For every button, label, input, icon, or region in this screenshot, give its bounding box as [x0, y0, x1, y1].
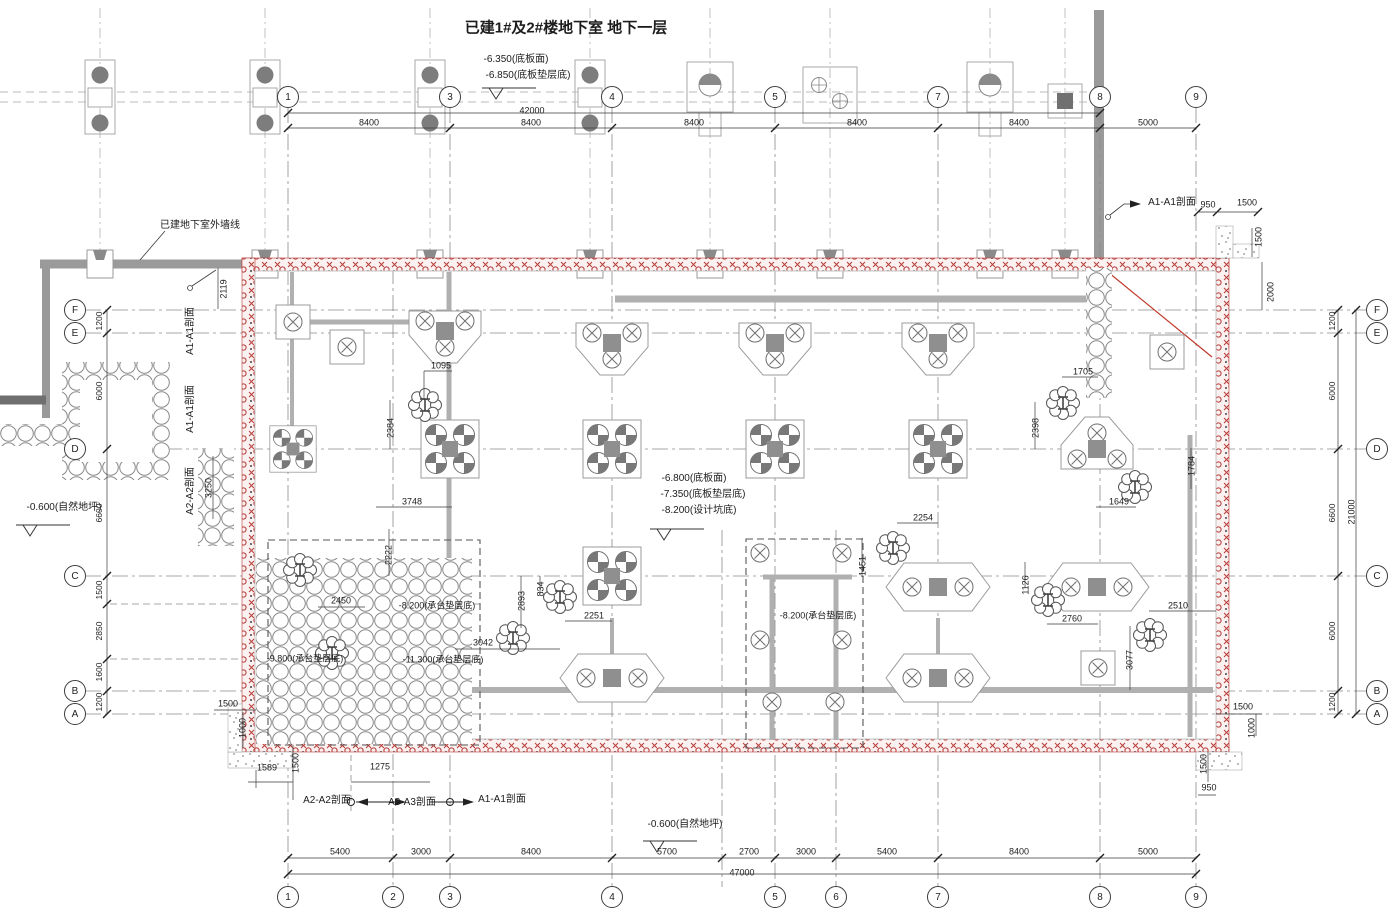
dewatering-well-icon: [409, 389, 442, 422]
dewatering-well-icon: [497, 622, 530, 655]
pile-cap-4-icon: [583, 547, 641, 605]
pile-cap-3-icon: [886, 654, 990, 702]
pile-cap-3-icon: [739, 323, 811, 375]
dewatering-well-icon: [1047, 387, 1080, 420]
pile-cap-3-icon: [560, 654, 664, 702]
grid-lines: [85, 107, 1367, 887]
section-arrow-icon: [395, 798, 406, 805]
pile-cap-1-icon: [1081, 651, 1115, 685]
level-symbol-icon: [643, 841, 697, 852]
drawing-canvas: [0, 0, 1394, 912]
dewatering-well-icon: [316, 637, 349, 670]
level-symbol-icon: [650, 529, 704, 540]
pile-cap-4-icon: [421, 420, 479, 478]
section-arrow-icon: [357, 798, 368, 805]
pile-cap-3-icon: [1061, 417, 1133, 469]
existing-column-icon: [575, 60, 605, 134]
pile-icon: [751, 631, 769, 649]
dewatering-well-icon: [1032, 584, 1065, 617]
pile-icon: [826, 693, 844, 711]
pile-icon: [751, 544, 769, 562]
existing-column-icon: [415, 60, 445, 134]
section-arrow-icon: [463, 798, 474, 805]
dewatering-well-icon: [1119, 471, 1152, 504]
pile-cap-3-icon: [902, 323, 974, 375]
level-symbol-icon: [482, 88, 536, 99]
pile-cap-4-icon: [270, 426, 316, 472]
construction-drawing: 已建1#及2#楼地下室 地下一层-6.350(底板面)-6.850(底板垫层底)…: [0, 0, 1394, 912]
level-symbol-icon: [16, 525, 70, 536]
pile-icon: [833, 544, 851, 562]
pile-cap-1-icon: [330, 330, 364, 364]
dewatering-well-icon: [544, 581, 577, 614]
dewatering-well-icon: [877, 532, 910, 565]
markers: [16, 88, 1141, 852]
pile-icon: [833, 631, 851, 649]
pile-cap-4-icon: [746, 420, 804, 478]
dimension-lines: [107, 113, 1356, 874]
pile-cap-3-icon: [409, 311, 481, 363]
dewatering-well-icon: [284, 554, 317, 587]
section-arrow-icon: [1130, 200, 1141, 207]
pile-cap-1-icon: [276, 305, 310, 339]
dewatering-well-icon: [1134, 619, 1167, 652]
existing-column-icon: [250, 60, 280, 134]
existing-column-icon: [85, 60, 115, 134]
pile-cap-1-icon: [1150, 335, 1184, 369]
pile-cap-3-icon: [886, 563, 990, 611]
pile-cap-4-icon: [583, 420, 641, 478]
pile-cap-3-icon: [576, 323, 648, 375]
pile-cap-4-icon: [909, 420, 967, 478]
pile-icon: [763, 693, 781, 711]
